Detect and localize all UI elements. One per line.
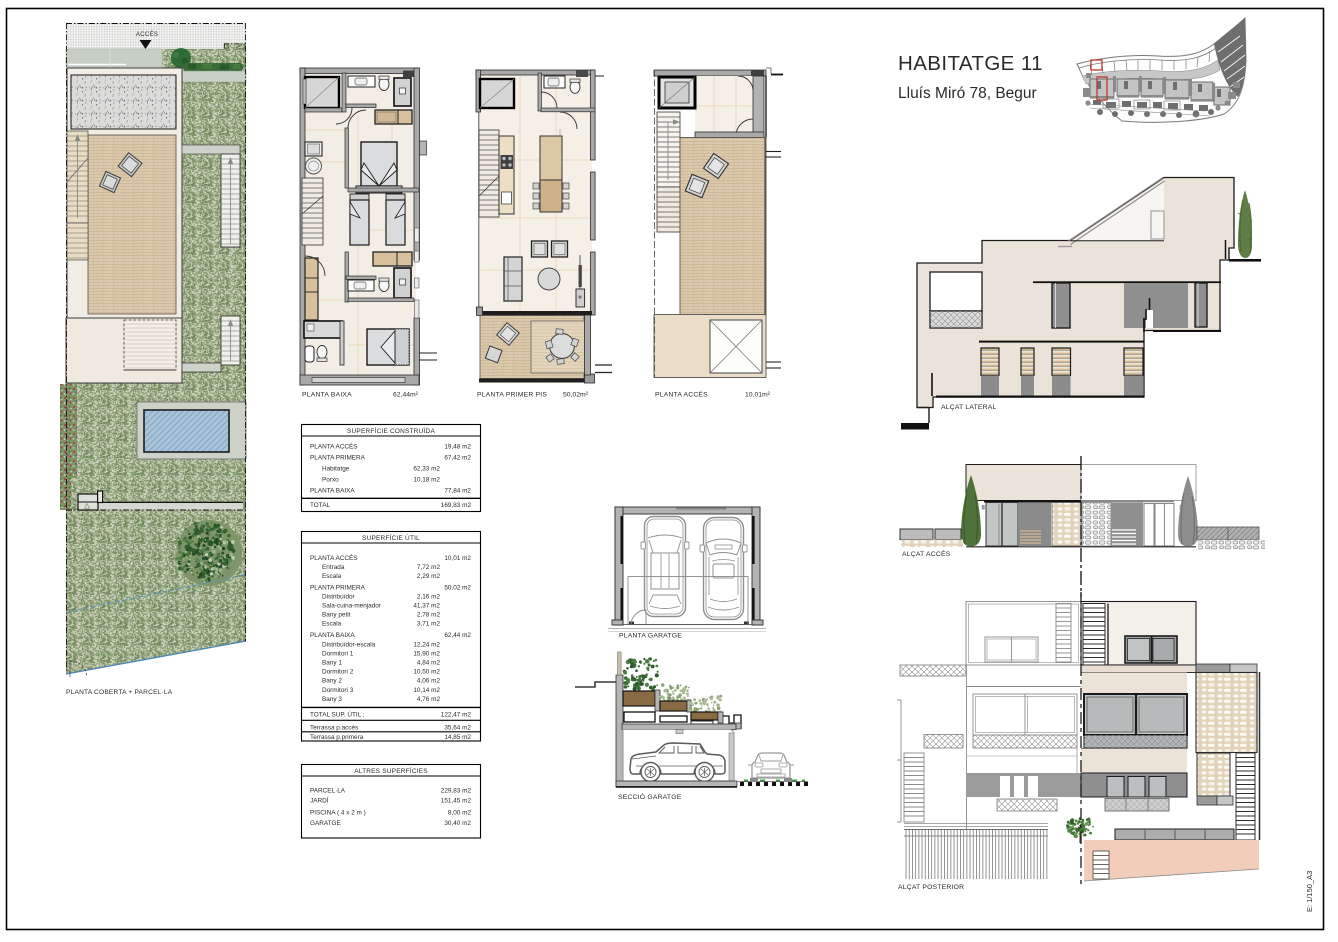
svg-text:62,33 m2: 62,33 m2 [413, 466, 440, 473]
svg-text:62,44m²: 62,44m² [393, 392, 419, 399]
svg-text:PARCEL·LA: PARCEL·LA [310, 788, 346, 795]
svg-text:PLANTA ACCÉS: PLANTA ACCÉS [655, 390, 708, 399]
svg-text:PLANTA ACCÉS: PLANTA ACCÉS [310, 442, 357, 451]
svg-text:PLANTA ACCÉS: PLANTA ACCÉS [310, 553, 357, 562]
svg-text:169,83 m2: 169,83 m2 [441, 502, 472, 509]
svg-text:PLANTA BAIXA: PLANTA BAIXA [310, 488, 355, 495]
svg-text:14,85 m2: 14,85 m2 [444, 734, 471, 741]
svg-text:12,24 m2: 12,24 m2 [413, 641, 440, 648]
svg-text:PLANTA PRIMERA: PLANTA PRIMERA [310, 455, 366, 462]
svg-text:PLANTA BAIXA: PLANTA BAIXA [302, 392, 352, 399]
svg-text:10,14 m2: 10,14 m2 [413, 687, 440, 694]
svg-text:Bany petit: Bany petit [322, 612, 351, 619]
svg-text:41,37 m2: 41,37 m2 [413, 603, 440, 610]
svg-text:Distribuïdor-escala: Distribuïdor-escala [322, 641, 376, 648]
svg-text:Terrassa p.accés: Terrassa p.accés [310, 725, 358, 732]
svg-text:Escala: Escala [322, 573, 342, 580]
svg-text:10,01 m2: 10,01 m2 [444, 555, 471, 562]
svg-text:PLANTA PRIMERA: PLANTA PRIMERA [310, 585, 366, 592]
svg-text:HABITATGE 11: HABITATGE 11 [898, 52, 1043, 75]
svg-text:15,90 m2: 15,90 m2 [413, 650, 440, 657]
svg-text:8,00 m2: 8,00 m2 [448, 810, 472, 817]
svg-text:Bany 1: Bany 1 [322, 660, 342, 667]
svg-text:Escala: Escala [322, 621, 342, 628]
svg-text:2,16 m2: 2,16 m2 [417, 594, 441, 601]
svg-text:Dormitori 1: Dormitori 1 [322, 650, 354, 657]
svg-text:ALTRES SUPERFÍCIES: ALTRES SUPERFÍCIES [354, 766, 428, 775]
svg-text:67,42 m2: 67,42 m2 [444, 455, 471, 462]
svg-text:SUPERFÍCIE CONSTRUÏDA: SUPERFÍCIE CONSTRUÏDA [347, 426, 435, 435]
svg-text:10,01m²: 10,01m² [745, 392, 771, 399]
svg-text:ALÇAT POSTERIOR: ALÇAT POSTERIOR [898, 884, 964, 891]
svg-text:ACCÉS: ACCÉS [136, 31, 158, 38]
svg-text:PLANTA BAIXA: PLANTA BAIXA [310, 632, 355, 639]
svg-text:3,71 m2: 3,71 m2 [417, 621, 441, 628]
svg-text:7,72 m2: 7,72 m2 [417, 564, 441, 571]
svg-text:77,84 m2: 77,84 m2 [444, 488, 471, 495]
svg-text:GARATGE: GARATGE [310, 820, 341, 827]
svg-text:JARDÍ: JARDÍ [310, 796, 329, 805]
svg-text:Lluís Miró 78, Begur: Lluís Miró 78, Begur [898, 85, 1037, 102]
svg-text:Porxo: Porxo [322, 477, 339, 484]
svg-text:62,44 m2: 62,44 m2 [444, 632, 471, 639]
svg-text:PLANTA GARATGE: PLANTA GARATGE [619, 633, 682, 640]
svg-text:229,83 m2: 229,83 m2 [441, 788, 472, 795]
svg-text:ALÇAT ACCÉS: ALÇAT ACCÉS [902, 549, 951, 558]
svg-text:35,64 m2: 35,64 m2 [444, 725, 471, 732]
svg-text:Habitatge: Habitatge [322, 466, 350, 473]
svg-text:TOTAL: TOTAL [310, 502, 330, 509]
svg-text:PISCINA ( 4 x 2 m ): PISCINA ( 4 x 2 m ) [310, 810, 366, 817]
svg-text:Terrassa p.primera: Terrassa p.primera [310, 734, 364, 741]
svg-text:19,48 m2: 19,48 m2 [444, 444, 471, 451]
svg-text:SUPERFÍCIE ÚTIL: SUPERFÍCIE ÚTIL [362, 533, 420, 542]
svg-text:Bany 3: Bany 3 [322, 696, 342, 703]
svg-text:50,02 m2: 50,02 m2 [444, 585, 471, 592]
svg-text:2,29 m2: 2,29 m2 [417, 573, 441, 580]
svg-text:TOTAL SUP. ÚTIL ;: TOTAL SUP. ÚTIL ; [310, 710, 365, 719]
svg-text:4,84 m2: 4,84 m2 [417, 660, 441, 667]
svg-text:Sala-cuina-menjador: Sala-cuina-menjador [322, 603, 382, 610]
svg-text:2,78 m2: 2,78 m2 [417, 612, 441, 619]
svg-text:E: 1/150_A3: E: 1/150_A3 [1305, 871, 1314, 912]
svg-text:30,40 m2: 30,40 m2 [444, 820, 471, 827]
svg-text:4,76 m2: 4,76 m2 [417, 696, 441, 703]
svg-text:PLANTA PRIMER PIS: PLANTA PRIMER PIS [477, 392, 547, 399]
svg-text:Distribuïdor: Distribuïdor [322, 594, 356, 601]
svg-text:151,45 m2: 151,45 m2 [441, 798, 472, 805]
svg-text:4,06 m2: 4,06 m2 [417, 678, 441, 685]
svg-text:ALÇAT LATERAL: ALÇAT LATERAL [941, 404, 997, 411]
svg-text:Dormitori 3: Dormitori 3 [322, 687, 354, 694]
svg-text:Entrada: Entrada [322, 564, 345, 571]
svg-text:10,50 m2: 10,50 m2 [413, 669, 440, 676]
svg-text:PLANTA COBERTA + PARCEL·LA: PLANTA COBERTA + PARCEL·LA [66, 689, 173, 696]
svg-text:10,18 m2: 10,18 m2 [413, 477, 440, 484]
svg-text:SECCIÓ GARATGE: SECCIÓ GARATGE [618, 792, 682, 801]
svg-text:50,02m²: 50,02m² [563, 392, 589, 399]
svg-text:Dormitori 2: Dormitori 2 [322, 669, 354, 676]
svg-text:Bany 2: Bany 2 [322, 678, 342, 685]
svg-text:122,47 m2: 122,47 m2 [441, 712, 472, 719]
